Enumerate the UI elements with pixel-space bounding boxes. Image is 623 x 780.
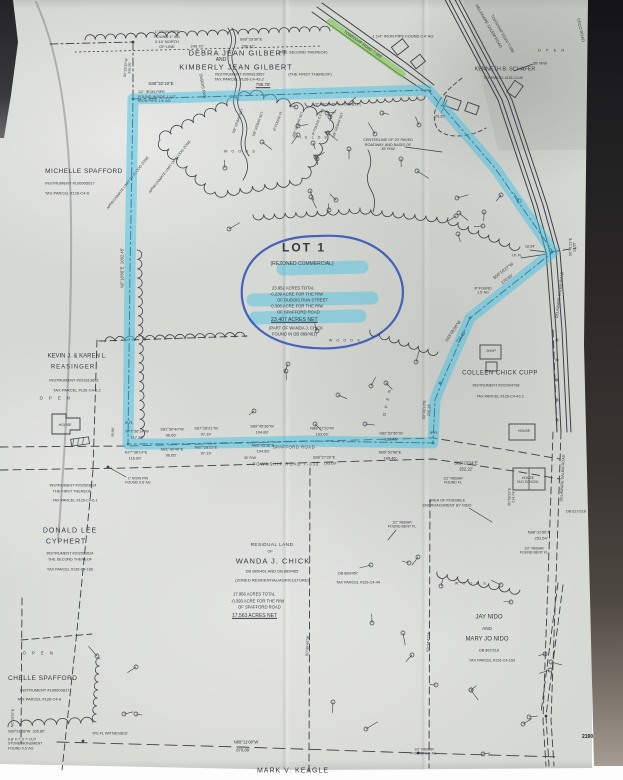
bearing-label: N89°45'36"E (252, 443, 275, 448)
flood-note: APPROXIMATE LIMIT OF FLOOD ZONE (106, 156, 150, 211)
monument-note: 5/8" REBAR SET (292, 111, 305, 137)
map-labels: 1" IRON PIPE FOUND 1" AG 0.15' NORTH OF … (0, 0, 623, 780)
owner-note: TAX PARCEL #126-C4-6.1 (52, 499, 97, 504)
field-label: W O O D S (455, 582, 488, 587)
road-label: DELAWARE SALEM ROAD (555, 271, 565, 318)
lot-area-note: -0.239 ACRE FOR THE R/W (270, 291, 323, 296)
monument-note: 1/2" IRON PIPE FOUND INSIDE 1 1/2" IRON … (138, 90, 176, 104)
owner-note: RESIDUAL LAND (251, 542, 294, 548)
monument-note: 1" IRON PIPE FOUND 1" AG 0.15' NORTH OF … (154, 29, 180, 49)
distance-label: 193.69' (316, 432, 329, 437)
area-note: 17.956 ACRES TOTAL (233, 591, 275, 596)
bearing-label: S88°27'20"E (313, 455, 335, 460)
monument-note: 1 1/4" IRON PIPE FOUND 0.4' AG (372, 34, 433, 39)
bearing-label: S89°31'08"W 335.80' (8, 730, 45, 735)
owner-note: TAX PARCEL #126-C4-45 (483, 76, 522, 80)
bearing-label: S0°30'10"E 205.26' (422, 400, 432, 420)
distance-label: 193.69' (324, 461, 337, 466)
road-label: DELAWARE SALEM ROAD (559, 454, 566, 501)
owner-name: CHELLE SPAFFORD (8, 675, 78, 683)
distance-label: 252.22' (459, 466, 473, 471)
monument-note: 5/8" REBAR SET (332, 112, 345, 138)
distance-label: 798.78' (256, 82, 271, 88)
distance-label: 206.42' (242, 44, 255, 49)
building-label: HOUSE (518, 429, 530, 433)
bearing-label: S89°33'30"E (240, 37, 262, 42)
road-label: DELAWARE SALEM ROAD (474, 3, 503, 48)
monument-note: 1" IRON PIN FOUND 0.8' AG (125, 477, 150, 486)
lot-area-note: 23.952 ACRES TOTAL (272, 285, 314, 290)
area-note: AREA OF POSSIBLE ENCROACHMENT BY NIDO (422, 498, 471, 507)
owner-name: MARK V. KEAGLE (257, 768, 329, 777)
owner-note: TAX PARCEL #126-C4-169 (469, 659, 515, 664)
owner-note: INSTRUMENT #202503624 (47, 552, 94, 557)
monument-note: 1/2" REBAR FOUND FL (443, 477, 463, 486)
owner-note: THE FIRST THEREOF (53, 490, 92, 495)
owner-note: TAX PARCEL #126-C4-6.2 (53, 388, 101, 393)
monument-note: 1/2" REBAR FOUND BENT FL (520, 547, 549, 556)
area-note: -0.393 ACRE FOR THE R/W (231, 598, 284, 603)
distance-label: 234.05' (455, 330, 467, 344)
distance-label: 270.66' (500, 273, 514, 286)
bearing-label: N88°31'50"E (528, 530, 551, 535)
bearing-label: N77°36'14"E (125, 450, 148, 455)
bearing-label: N89°11'08"W (234, 739, 259, 744)
bearing-label: S89°52'56"W (379, 431, 403, 436)
lot-area-note: FOUND IN DB 889/461) (272, 331, 317, 336)
monument-note: IP FOUND FL (272, 110, 283, 131)
lot-area-note: OF SPAFFORD ROAD (277, 309, 320, 314)
bearing-label: S0°35'44"W (305, 636, 311, 656)
owner-note: (THE SECOND THEREOF) (278, 50, 327, 55)
field-label: O P E N (23, 650, 56, 655)
stream-label: DUBOIS RUN (198, 73, 207, 99)
owner-name: DONALD LEE (43, 528, 97, 537)
bearing-label: S81°30'40"W (160, 427, 184, 432)
owner-note: DB 889/461 AND DB 889/455 (246, 569, 299, 574)
monument-note: 0.8' X 7' X 7' CUT STONE MONUMENT FOUND … (8, 737, 42, 750)
owner-note: TAX PARCEL #126-C4-6 (17, 697, 61, 702)
lot-title: LOT 1 (282, 241, 326, 256)
deed-note: DB 617/218 (566, 510, 586, 515)
road-label: SPAFFORD ROAD (273, 444, 315, 449)
area-note: 17.563 ACRES NET (232, 613, 277, 619)
field-label: O P E N (40, 395, 73, 400)
bearing-label: S0°41'31"E 32.55' (569, 238, 578, 256)
owner-name: MICHELLE SPAFFORD (45, 168, 123, 176)
building-label: HOUSE OLD SCHOOL (517, 476, 539, 485)
owner-name: JAY NIDO (475, 614, 502, 622)
building-label: SHOP (486, 349, 496, 353)
owner-name: CYPHERT (46, 539, 86, 548)
monument-note: IP FOUND 1.5' AG (474, 287, 491, 296)
distance-label: 97.19' (201, 451, 212, 456)
bearing-label: S0°58'37"E 214.74' (507, 488, 517, 506)
area-note: OF SPAFFORD ROAD (238, 604, 281, 609)
distance-label: 188.46' (385, 437, 398, 442)
owner-note: INSTRUMENT #100905017 (45, 181, 95, 186)
owner-name: KEVIN J. & KAREN L. (47, 353, 106, 361)
monument-note: 5/8" REBAR SET (252, 111, 265, 137)
distance-label: 116.89' (129, 456, 142, 461)
distance-label: 188.46' (384, 456, 397, 461)
monument-note: IP FOUND 0.3' AG (311, 108, 325, 136)
deed-note: DB 889/457 (338, 572, 358, 577)
owner-name: DEBRA JEAN GILBERT (189, 48, 288, 57)
scanned-survey-plat: 1" IRON PIPE FOUND 1" AG 0.15' NORTH OF … (0, 0, 623, 780)
monument-note: IP FL (430, 431, 439, 435)
distance-label: 18.54' (525, 245, 535, 250)
distance-label: 97.19' (201, 432, 212, 437)
owner-note: INSTRUMENT #202503624 (50, 484, 97, 489)
owner-note: TAX PARCEL #126-C4-44 (336, 581, 380, 586)
distance-label: 117.23' (131, 435, 144, 440)
owner-note: (ZONED RESIDENTIAL/AGRICULTURE) (235, 578, 309, 583)
road-label: TOWNSHIP ROAD T-588 (343, 29, 383, 59)
distance-label: 90.88' (111, 427, 116, 436)
owner-note: TAX PARCEL #126-C4-43.3 (476, 395, 523, 400)
field-label: O P E N (538, 48, 567, 53)
monument-note: 1/2" IRON PIPE FOUND FL (312, 102, 361, 107)
road-note: 35' R/W (533, 61, 547, 66)
monument-note: IPS FL WITNESSED (92, 732, 127, 737)
owner-note: TAX PARCEL #126-C4-166 (47, 568, 93, 573)
road-note: CENTERLINE OF 20' PAVED ROADWAY AND BASI… (363, 138, 413, 152)
bearing-label: S87°28'21"W (194, 426, 218, 431)
field-label: W O O D S (329, 339, 362, 344)
bearing-label: N0°18'06"E 1062.45' (119, 248, 124, 288)
owner-note: INSTRUMENT #201813632 (49, 378, 99, 383)
flood-note: APPROXIMATE LIMIT OF FLOOD ZONE (148, 140, 192, 195)
monument-note: 5/8" REBAR SET (232, 108, 245, 134)
owner-name: REASINGER (51, 364, 95, 372)
owner-note: THE SECOND THEREOF (48, 558, 92, 563)
monument-note: 1/2" REBAR FOUND 1.5' AG (411, 748, 436, 757)
road-label: TOWNSHIP ROAD T-333 (253, 461, 319, 466)
building-label: HOUSE (59, 423, 72, 427)
bearing-label: S77°36'14"W (125, 429, 149, 434)
field-label: F I E L D S (294, 136, 329, 141)
monument-note: 1/2" REBAR FOUND BENT FL (388, 521, 417, 530)
distance-label: 29.25' (435, 114, 446, 119)
bearing-label: S3°34'41"W (426, 632, 432, 652)
road-label: TOWNSHIP ROAD T-588 (489, 14, 515, 54)
owner-name: KIMBERLY JEAN GILBERT (179, 62, 293, 71)
lot-area-note: -0.306 ACRE FOR THE R/W (270, 303, 323, 308)
owner-name: AND (482, 626, 492, 632)
bearing-label: N88°27'20"W (310, 426, 334, 431)
monument-note: IP FL (125, 421, 134, 425)
owner-note: OF (267, 550, 272, 555)
bearing-label: N89°52'56"E (379, 450, 402, 455)
owner-note: TAX PARCEL #126-C4-6 (45, 191, 89, 196)
distance-label: 870.88' (236, 747, 250, 752)
owner-note: (THE FIRST THEREOF) (288, 72, 331, 77)
lot-area-note: 23.407 ACRES NET (271, 317, 318, 324)
distance-label: 194.89' (257, 449, 270, 454)
lot-note: (REZONED COMMERCIAL) (270, 261, 333, 267)
bearing-label: N87°28'21"E (195, 445, 218, 450)
road-note: 30' R/W (244, 456, 256, 460)
bearing-label: S89°45'36"W (250, 424, 274, 429)
bearing-label: S89°32'19"E (148, 81, 173, 87)
bearing-label: N81°30'40"E (161, 447, 184, 452)
owner-note: INSTRUMENT #202004798 (473, 384, 520, 389)
lot-area-note: OF DUBOIS RUN STREET (277, 297, 328, 302)
owner-name: MARY JO NIDO (465, 636, 508, 644)
owner-note: INSTRUMENT #200813557 (215, 72, 265, 77)
bearing-label: N0°23'37"E (10, 709, 15, 728)
bearing-label: S50°10'27"W (492, 261, 515, 280)
distance-label: 96.65' (166, 453, 177, 458)
owner-note: TAX PARCEL #126-C4-43.2 (214, 77, 264, 82)
distance-label: 249.70' (191, 44, 204, 49)
owner-name: WANDA J. CHICK (236, 556, 311, 565)
monument-note: I.P. FL (512, 254, 523, 259)
bearing-label: S0°29'32"W 126.25' (123, 58, 133, 77)
distance-label: 96.65' (166, 433, 177, 438)
distance-label: 251.54' (535, 536, 548, 541)
owner-note: INSTRUMENT #199903817 (20, 688, 70, 693)
owner-name: KENNETH B. SCHAFER (475, 67, 536, 74)
road-label: CECO ROAD (576, 18, 586, 43)
owner-name: COLLEEN CHICK CUPP (462, 370, 538, 378)
bearing-label: S85°23'34"E (454, 460, 478, 465)
distance-label: 194.89' (256, 430, 269, 435)
deed-note: DB 867/216 (479, 649, 499, 654)
bearing-label: S43°05'56"W (444, 319, 462, 342)
field-label: W O O D S (224, 150, 257, 155)
owner-name: AND (216, 57, 227, 63)
field-label: O P E N (382, 387, 393, 416)
lot-area-note: (PART OF WANDA J. CHICK (269, 325, 323, 330)
